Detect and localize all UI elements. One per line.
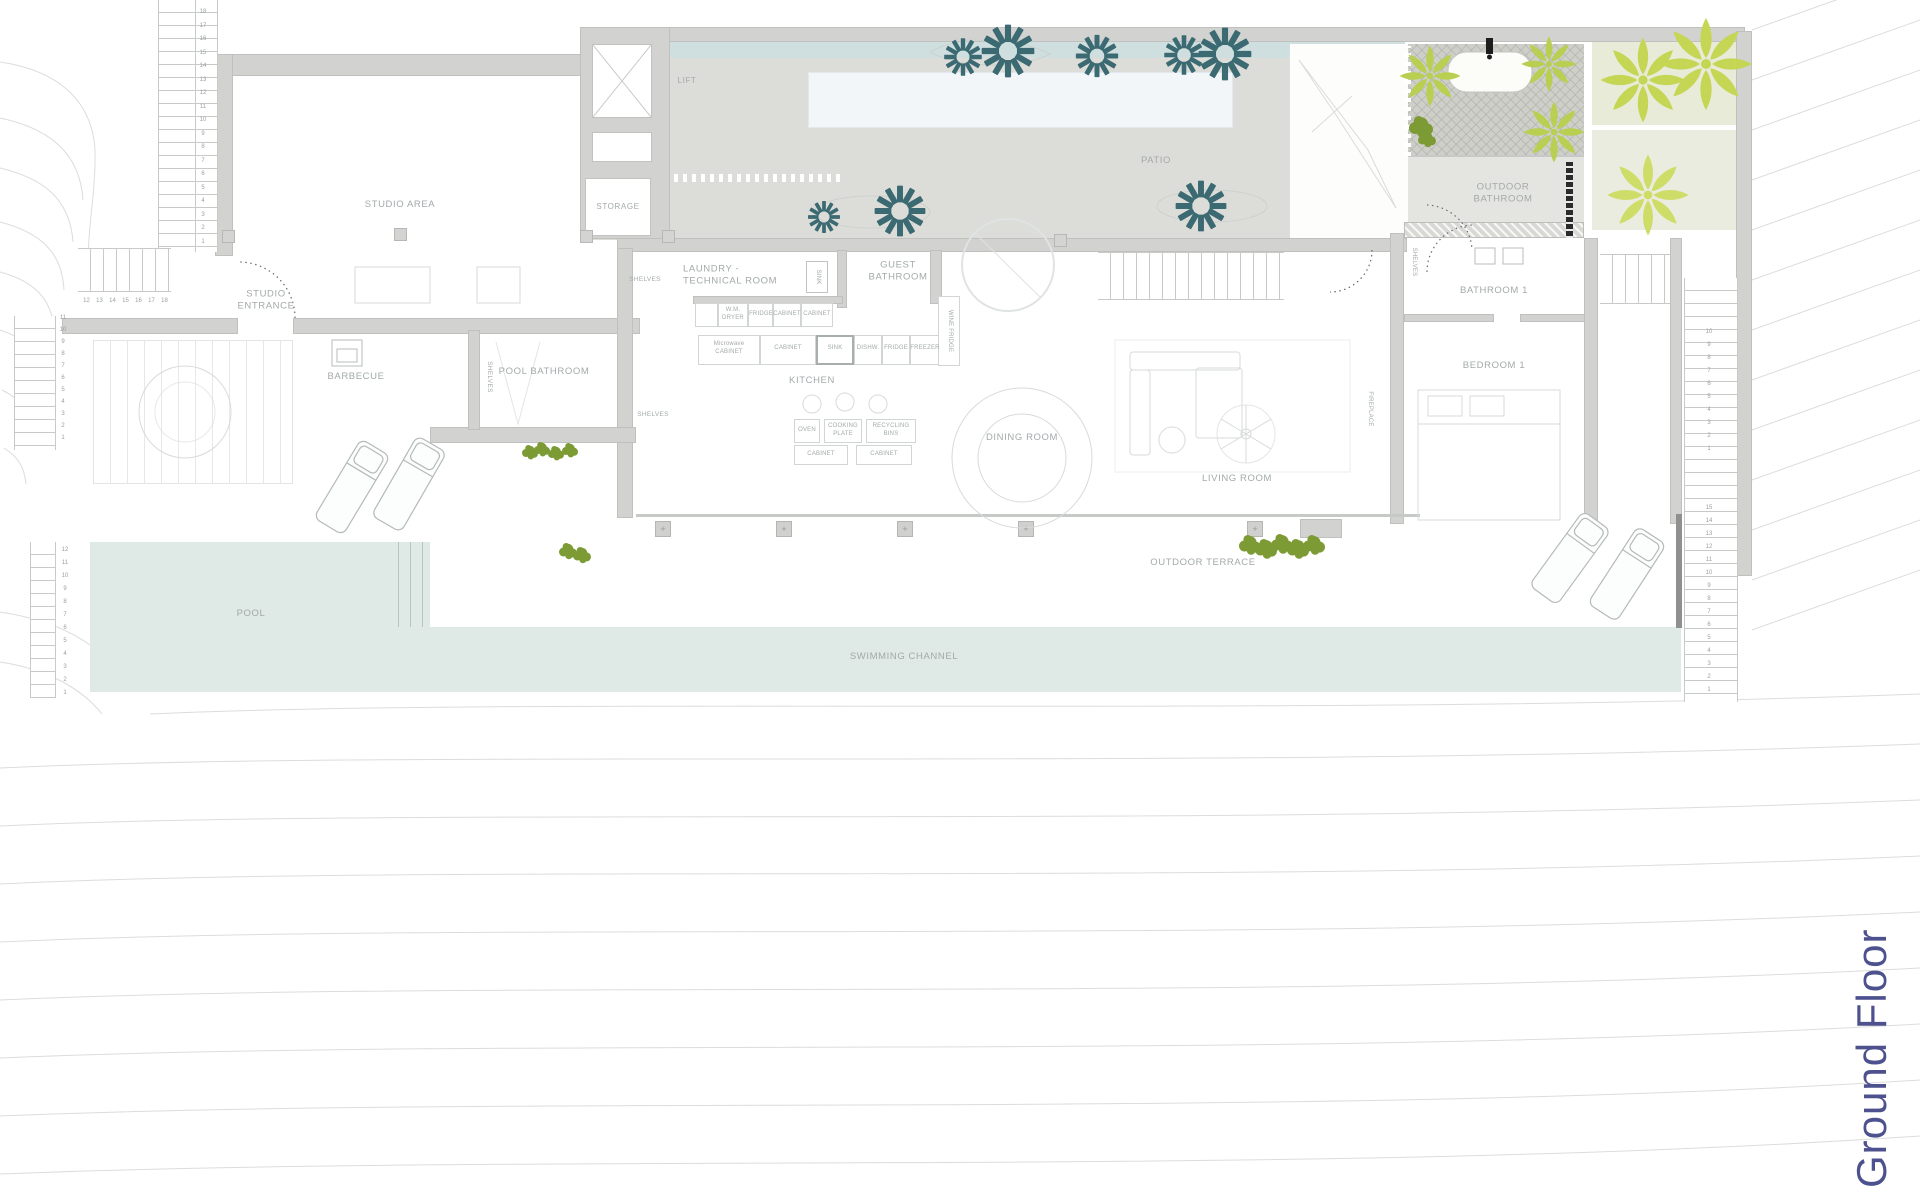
stair-number: 16 (196, 33, 210, 47)
label-lift: LIFT (678, 76, 697, 86)
label-outdoor-bathroom: OUTDOOR BATHROOM (1474, 182, 1533, 207)
bed (1418, 390, 1560, 520)
island-stool (869, 395, 887, 413)
column: + (1018, 521, 1034, 537)
label-microwave-cabinet: Microwave CABINET (714, 341, 744, 357)
stair-number: 13 (93, 296, 106, 306)
label-guest-bathroom: GUEST BATHROOM (869, 260, 928, 285)
wall-bathroom1-north-hatched (1404, 222, 1584, 238)
stair-number: 2 (56, 420, 70, 432)
wall-kitchen-south (430, 427, 636, 443)
stair-number: 1 (58, 687, 72, 700)
wall-kitchen-west (617, 248, 633, 518)
stair-number: 1 (1702, 443, 1716, 456)
coffee-table (1159, 427, 1185, 453)
lounger (371, 436, 446, 533)
planting-bed-upper (1592, 40, 1736, 125)
outdoor-bathroom-paving (1408, 44, 1584, 156)
label-bedroom-1: BEDROOM 1 (1463, 360, 1525, 372)
pool-ladder-rail (398, 542, 399, 627)
stair-number: 2 (1702, 671, 1716, 684)
label-recycling-bins: RECYCLING BINS (873, 423, 910, 439)
lift-lobby (592, 132, 652, 162)
pool-ladder-rail (410, 542, 411, 627)
stair-number: 5 (196, 182, 210, 196)
stair-number: 11 (56, 312, 70, 324)
stair-number: 13 (196, 74, 210, 88)
label-sink-guest: SINK (813, 270, 821, 285)
stair-number: 11 (1702, 554, 1716, 567)
wall-studio-south-a (62, 318, 238, 334)
stair-number: 15 (1702, 502, 1716, 515)
barbecue-grill (332, 340, 362, 366)
label-pool-bathroom: POOL BATHROOM (499, 366, 590, 378)
stair-number: 2 (58, 674, 72, 687)
stair-number: 15 (119, 296, 132, 306)
label-cabinet-3: CABINET (774, 345, 801, 353)
stair-number: 8 (58, 596, 72, 609)
stair-number: 7 (1702, 606, 1716, 619)
stair-number: 4 (56, 396, 70, 408)
island-stool (836, 393, 854, 411)
label-bathroom-1: BATHROOM 1 (1460, 285, 1528, 297)
stair-number: 8 (196, 141, 210, 155)
stair-number: 14 (106, 296, 119, 306)
wall-north (580, 27, 1745, 42)
stair-number: 18 (158, 296, 171, 306)
wall-bathroom1-south-a (1404, 314, 1494, 322)
lounger (1529, 511, 1611, 605)
wall-studio-south-b (293, 318, 640, 334)
label-shelves-laundry-1: SHELVES (629, 276, 661, 284)
lift-cross-icon (593, 45, 651, 117)
section-marker (580, 230, 593, 243)
label-outdoor-terrace: OUTDOOR TERRACE (1150, 557, 1255, 569)
stair-number: 12 (58, 544, 72, 557)
wall-bedroom-west (1390, 233, 1404, 524)
label-kitchen: KITCHEN (789, 375, 835, 387)
label-shelves-bathroom1: SHELVES (1409, 248, 1417, 277)
column: + (776, 521, 792, 537)
label-cabinet-4: CABINET (807, 451, 834, 459)
label-studio-area: STUDIO AREA (365, 199, 435, 211)
stair-number: 7 (56, 360, 70, 372)
planting-bed-lower (1592, 130, 1736, 230)
stair-number: 1 (196, 236, 210, 250)
stair-number: 1 (56, 432, 70, 444)
stair-number: 17 (196, 20, 210, 34)
label-oven: OVEN (798, 427, 816, 435)
stair-number: 15 (196, 47, 210, 61)
wall-bathroom1-south-b (1520, 314, 1587, 322)
stair-number: 3 (196, 209, 210, 223)
label-wine-fridge: WINE FRIDGE (945, 310, 953, 352)
wall-corridor-east (1670, 238, 1682, 524)
label-shelves-pool-bathroom: SHELVES (485, 361, 493, 393)
section-marker (394, 228, 407, 241)
wall-pool-bathroom-west (468, 330, 480, 430)
toilet (1503, 248, 1523, 264)
pool-bathroom-closet (496, 342, 540, 424)
stair-number: 11 (196, 101, 210, 115)
column: + (655, 521, 671, 537)
stair-number: 3 (1702, 658, 1716, 671)
stair-number: 16 (132, 296, 145, 306)
studio-table (477, 267, 520, 303)
stair-number: 14 (196, 60, 210, 74)
label-sink-kitchen: SINK (828, 345, 843, 353)
lounger (1588, 526, 1667, 622)
paving-edge-ticks (1404, 46, 1411, 156)
pillow (1428, 396, 1462, 416)
shower-screen (1566, 162, 1573, 238)
hall-door-arc (1330, 250, 1372, 292)
wall-living-north (617, 238, 1407, 252)
island-stool (803, 395, 821, 413)
section-marker (1054, 234, 1067, 247)
sun-loungers (314, 436, 1667, 622)
stair-numbers-pool-side: 121110987654321 (58, 544, 72, 700)
stair-number: 7 (1702, 365, 1716, 378)
stair-number: 6 (58, 622, 72, 635)
label-cabinet-5: CABINET (870, 451, 897, 459)
stair-number: 4 (58, 648, 72, 661)
stair-number: 5 (56, 384, 70, 396)
stair-numbers-west-lower: 1110987654321 (56, 312, 70, 444)
wall-bedroom-east (1584, 238, 1598, 524)
section-marker (662, 230, 675, 243)
wall-studio-north (220, 54, 613, 76)
stair-number: 1 (1702, 684, 1716, 697)
label-cooking-plate: COOKING PLATE (828, 423, 858, 439)
stair-number: 6 (196, 168, 210, 182)
ceiling-fan-icon (1217, 405, 1275, 463)
stair-number: 9 (1702, 580, 1716, 593)
sofa (1196, 368, 1242, 438)
label-pool: POOL (237, 608, 266, 620)
stair-number: 4 (1702, 404, 1716, 417)
stair-number: 6 (1702, 619, 1716, 632)
stair-number: 10 (196, 114, 210, 128)
living-rug (1115, 340, 1350, 472)
outdoor-bathroom-divider (1408, 155, 1584, 157)
stair-number: 18 (196, 6, 210, 20)
swimming-channel-water (430, 627, 1681, 692)
stair-number: 9 (56, 336, 70, 348)
stair-number: 12 (196, 87, 210, 101)
stair-number: 2 (196, 222, 210, 236)
pool-ladder-rail (422, 542, 423, 627)
stair-number: 7 (58, 609, 72, 622)
label-dining-room: DINING ROOM (986, 432, 1058, 444)
stair-number: 10 (56, 324, 70, 336)
stair-number: 5 (58, 635, 72, 648)
stair-number: 9 (196, 128, 210, 142)
stair-number: 3 (56, 408, 70, 420)
stair-numbers-east-lower: 151413121110987654321 (1702, 502, 1716, 697)
label-freezer: FREEZER (910, 345, 939, 353)
stair-entry-internal (1098, 252, 1284, 300)
stair-number: 6 (1702, 378, 1716, 391)
label-living-room: LIVING ROOM (1202, 473, 1272, 485)
stair-number: 4 (196, 195, 210, 209)
column: + (1247, 521, 1263, 537)
label-shelves-laundry-2: SHELVES (637, 411, 669, 419)
stair-pool-side (30, 542, 56, 698)
patio-lap-pool (808, 72, 1233, 128)
label-swimming-channel: SWIMMING CHANNEL (850, 651, 958, 663)
stair-number: 12 (80, 296, 93, 306)
stair-west-lower (14, 316, 56, 450)
label-wm-dryer: W.M. DRYER (722, 307, 744, 323)
lounger (314, 439, 391, 535)
label-fireplace: FIREPLACE (1365, 391, 1373, 426)
counter-cell (695, 303, 718, 327)
sheet-title: Ground Floor (1848, 888, 1896, 1188)
pillow (1470, 396, 1504, 416)
label-dishwasher: DISHW. (857, 345, 880, 353)
stair-corridor (1600, 254, 1670, 304)
stair-number: 8 (1702, 352, 1716, 365)
label-cabinet-1: CABINET (773, 311, 800, 319)
stair-handrail (1676, 514, 1682, 628)
stair-number: 8 (1702, 593, 1716, 606)
label-storage: STORAGE (596, 202, 639, 212)
label-barbecue: BARBECUE (327, 371, 384, 383)
wall-east (1736, 31, 1752, 576)
stair-numbers-northwest: 181716151413121110987654321 (196, 6, 210, 249)
patio-edge-ticks (665, 174, 840, 182)
terrace-pier (1300, 519, 1342, 538)
stair-number: 5 (1702, 391, 1716, 404)
sofa (1130, 352, 1240, 370)
stair-west-upper (78, 248, 171, 292)
column: + (897, 521, 913, 537)
stair-number: 8 (56, 348, 70, 360)
toilet (1475, 248, 1495, 264)
floor-plan: + + + + + 181716151413121110987654321 12… (0, 0, 1920, 1193)
stair-number: 14 (1702, 515, 1716, 528)
label-patio: PATIO (1141, 155, 1171, 167)
stair-number: 10 (1702, 567, 1716, 580)
stair-number: 13 (1702, 528, 1716, 541)
stair-numbers-west-upper: 12131415161718 (80, 296, 171, 306)
stair-number: 6 (56, 372, 70, 384)
dining-table (952, 388, 1092, 528)
stair-number: 11 (58, 557, 72, 570)
stair-number: 9 (58, 583, 72, 596)
label-fridge-2: FRIDGE (884, 345, 908, 353)
label-cabinet-2: CABINET (803, 311, 830, 319)
studio-table (355, 267, 430, 303)
glass-facade-south (636, 514, 1420, 517)
label-laundry: LAUNDRY - TECHNICAL ROOM (683, 264, 777, 289)
stair-number: 17 (145, 296, 158, 306)
stair-number: 3 (1702, 417, 1716, 430)
sofa (1130, 370, 1150, 455)
section-marker (222, 230, 235, 243)
stair-number: 12 (1702, 541, 1716, 554)
wood-deck (93, 340, 293, 484)
stair-number: 9 (1702, 339, 1716, 352)
stair-numbers-east-upper: 10987654321 (1702, 326, 1716, 456)
label-studio-entrance: STUDIO ENTRANCE (237, 289, 294, 314)
boulder-area (1290, 44, 1408, 240)
stair-number: 7 (196, 155, 210, 169)
stair-number: 10 (58, 570, 72, 583)
stair-number: 5 (1702, 632, 1716, 645)
stair-number: 2 (1702, 430, 1716, 443)
lift-cab (592, 44, 652, 118)
stair-number: 3 (58, 661, 72, 674)
label-fridge-1: FRIDGE (749, 311, 773, 319)
stair-number: 4 (1702, 645, 1716, 658)
stair-number: 10 (1702, 326, 1716, 339)
